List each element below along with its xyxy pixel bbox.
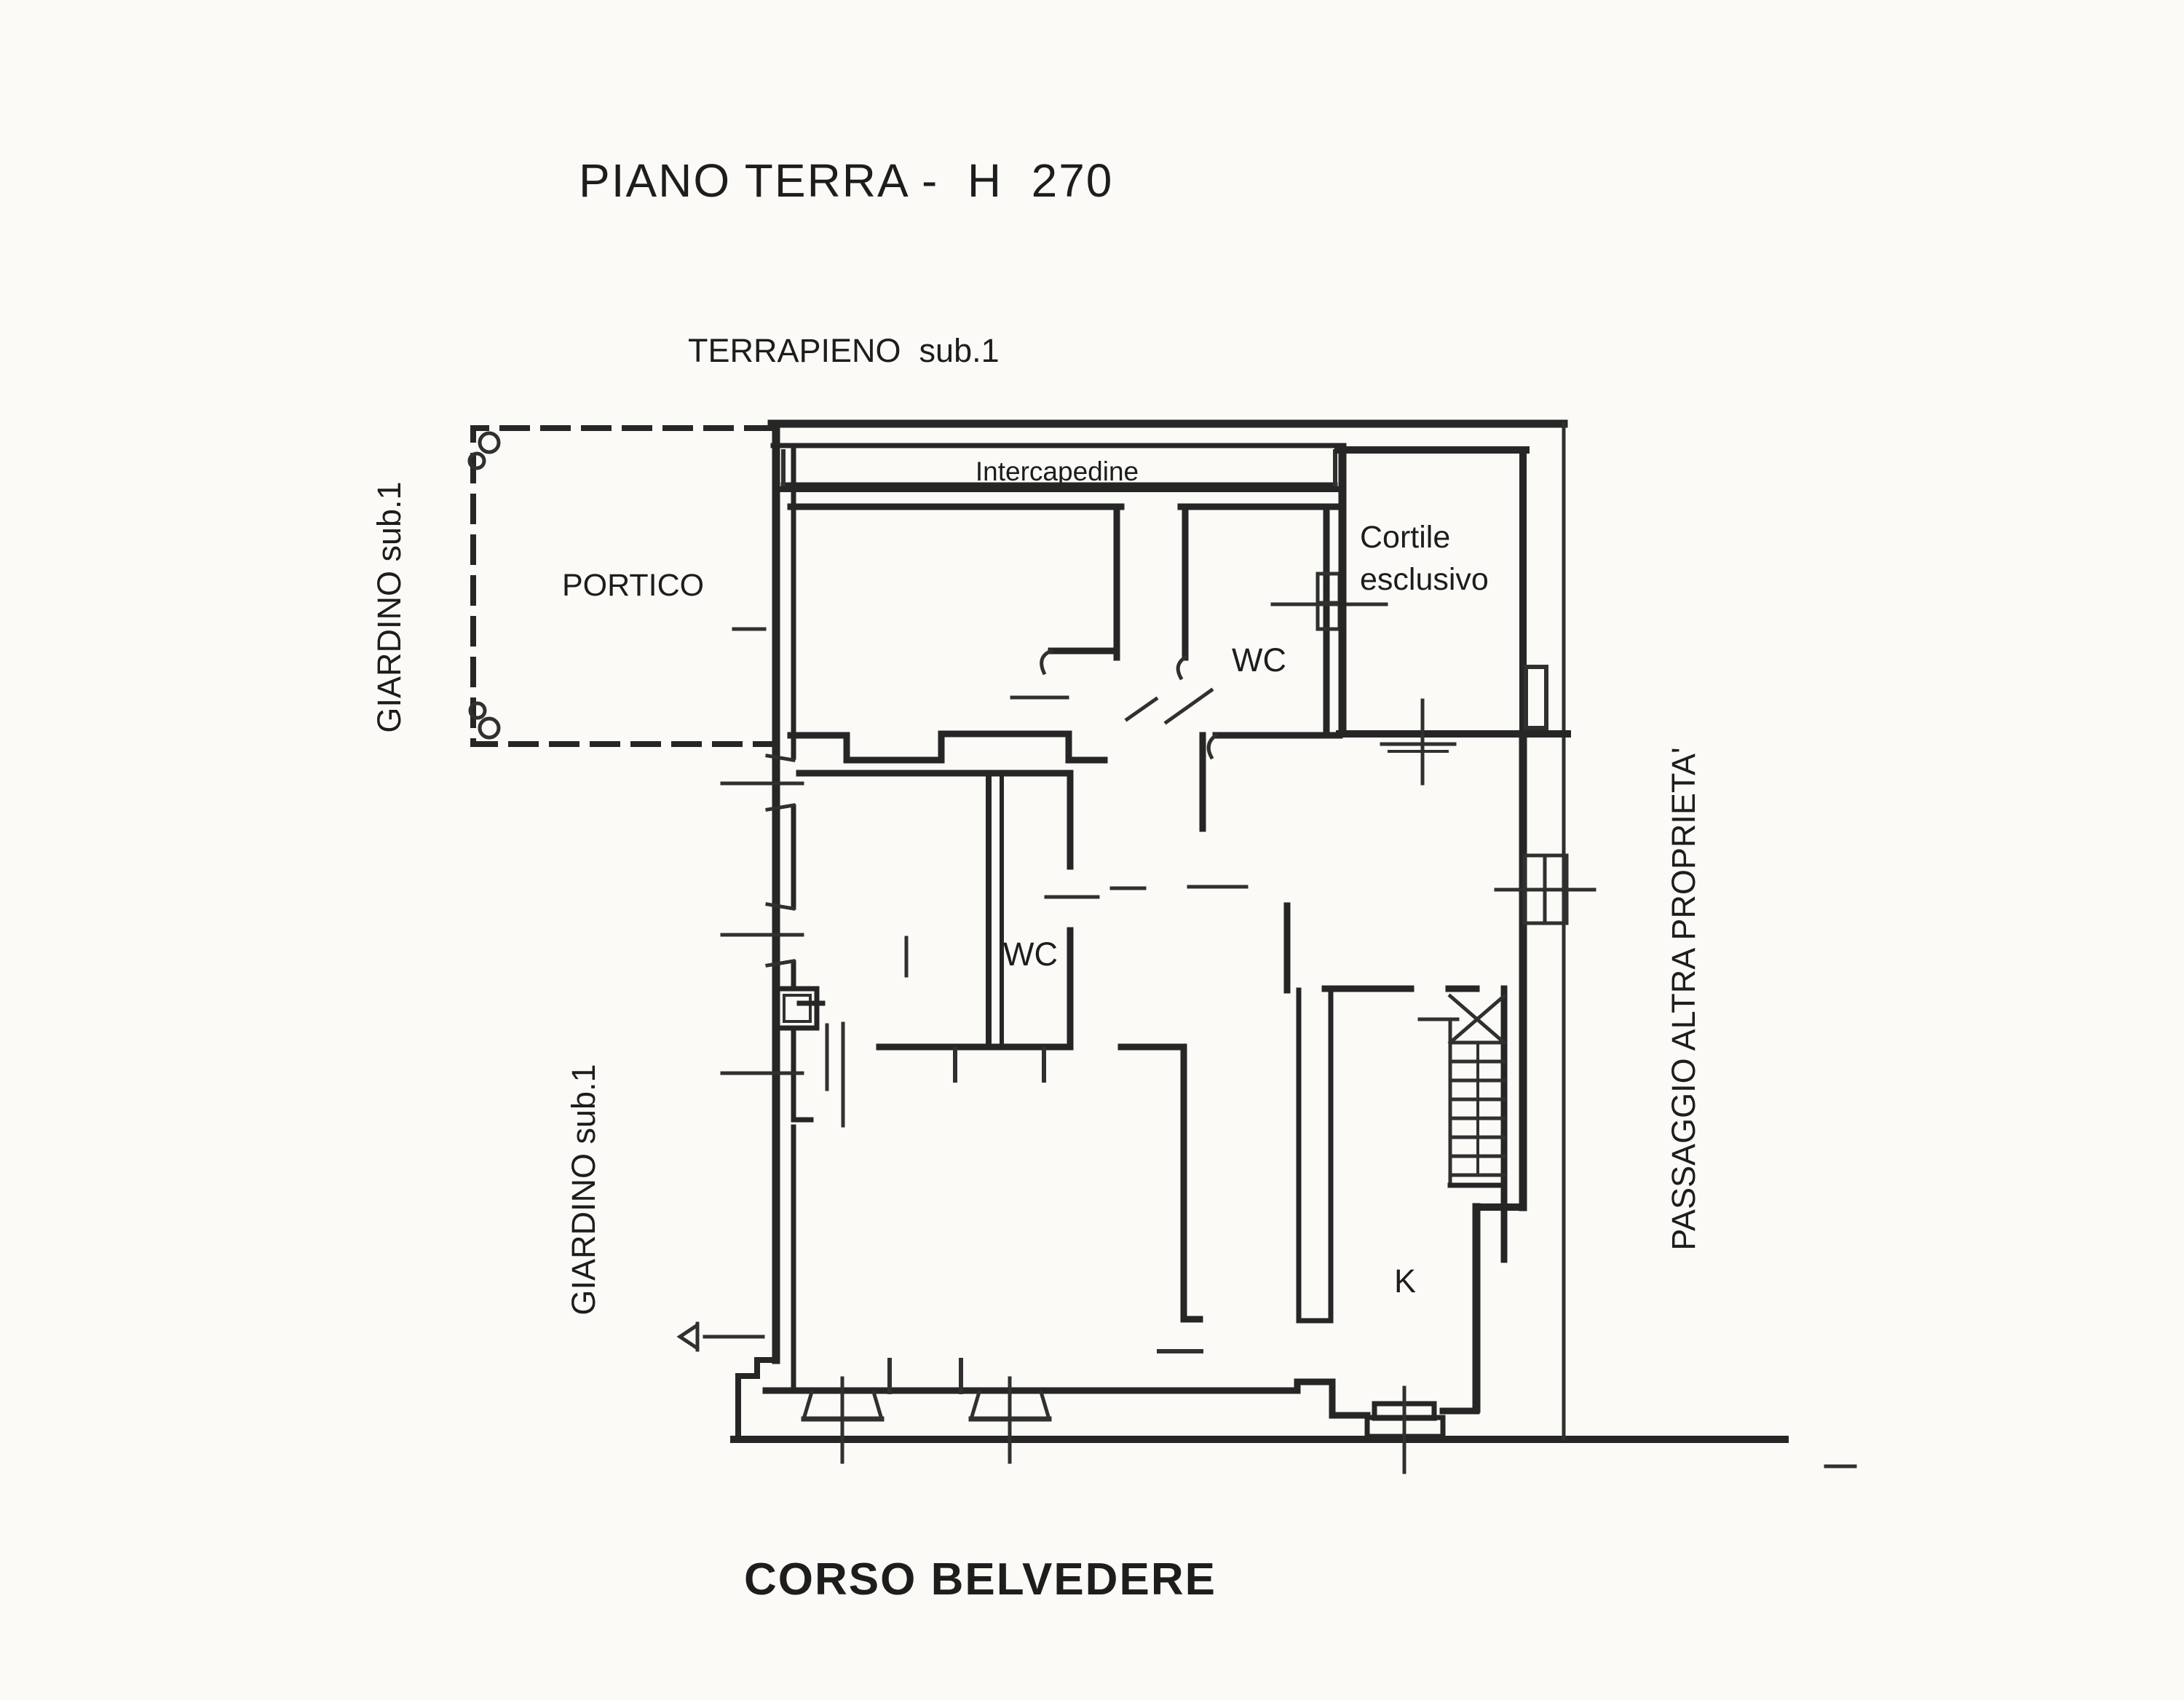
left-wall-windows xyxy=(722,629,817,1073)
plan-title: PIANO TERRA - H 270 xyxy=(579,154,1113,207)
portico-column-icon xyxy=(480,719,499,738)
door-leaf xyxy=(1127,699,1156,719)
cortile-label-line2: esclusivo xyxy=(1360,562,1489,597)
right-exterior-wall xyxy=(1443,734,1594,1411)
wc-middle-label: WC xyxy=(1003,936,1058,973)
terrapieno-label: TERRAPIENO sub.1 xyxy=(688,332,1000,369)
cortile-pilaster xyxy=(1526,667,1546,728)
scanned-floor-plan-page: PIANO TERRA - H 270 TERRAPIENO sub.1 GIA… xyxy=(0,0,2184,1700)
bottom-wall-windows xyxy=(804,1360,1049,1462)
portico-column-icon xyxy=(480,433,499,452)
portico-label: PORTICO xyxy=(562,568,704,603)
wall-niche-inner xyxy=(784,995,810,1021)
top-left-room-walls xyxy=(791,507,1156,760)
floor-plan-drawing: PIANO TERRA - H 270 TERRAPIENO sub.1 GIA… xyxy=(0,0,2184,1700)
bottom-left-room-walls xyxy=(827,1025,1201,1351)
staircase xyxy=(1420,989,1504,1260)
cortile-label-line1: Cortile xyxy=(1360,520,1450,555)
wc-top-label: WC xyxy=(1232,641,1286,679)
giardino-sub1-label-top: GIARDINO sub.1 xyxy=(371,481,408,732)
intercapedine-label: Intercapedine xyxy=(976,456,1139,486)
datum-arrow-icon xyxy=(680,1324,763,1350)
kitchen-label: K xyxy=(1394,1262,1416,1300)
cortile-walls xyxy=(1338,447,1567,783)
passaggio-label: PASSAGGIO ALTRA PROPRIETA' xyxy=(1665,747,1702,1250)
door-leaf xyxy=(1166,690,1211,722)
street-label: CORSO BELVEDERE xyxy=(744,1554,1216,1605)
giardino-sub1-label-bottom: GIARDINO sub.1 xyxy=(565,1064,602,1315)
entrance-steps xyxy=(1367,1388,1443,1472)
wc-top-room-walls xyxy=(1166,507,1386,757)
